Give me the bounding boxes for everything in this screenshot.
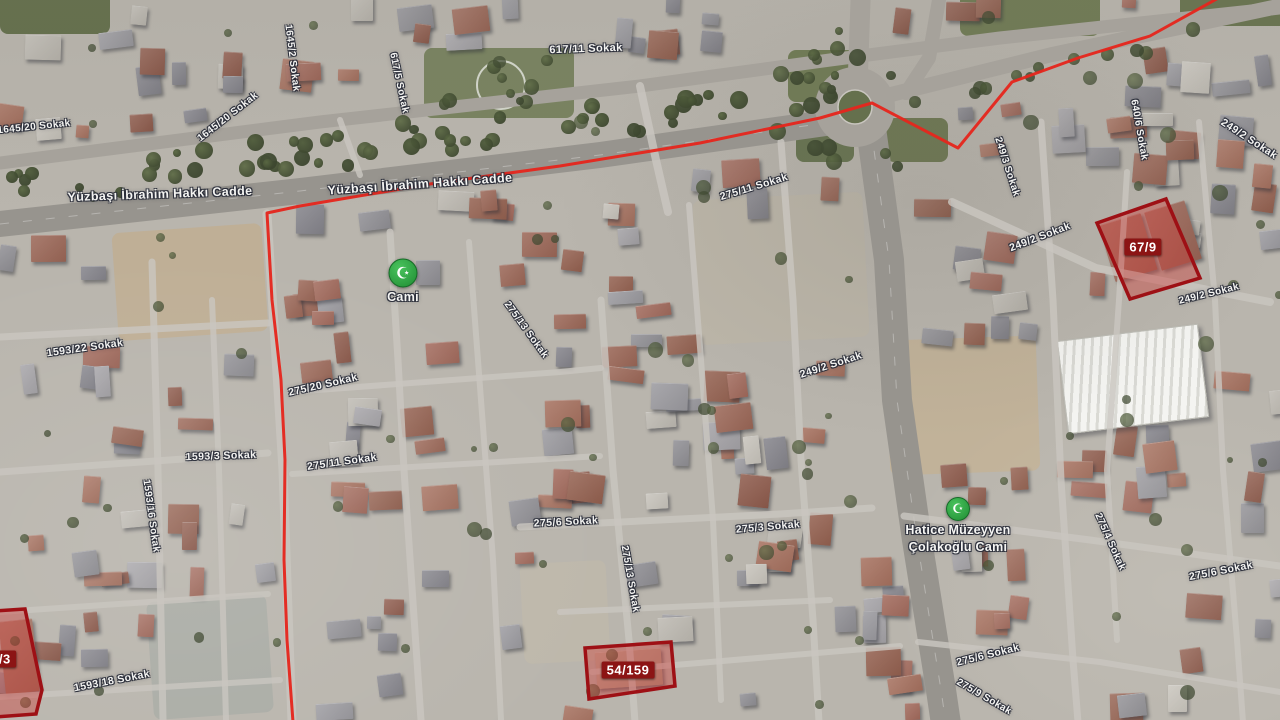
building (500, 624, 523, 650)
parcel-polygon[interactable] (585, 642, 675, 699)
building (279, 59, 315, 94)
building (738, 473, 773, 508)
building (182, 522, 197, 550)
tree (692, 94, 704, 106)
road (1107, 172, 1127, 640)
tree (485, 133, 499, 147)
tree (823, 90, 838, 105)
building (416, 260, 440, 285)
tree (892, 161, 903, 172)
building (515, 552, 534, 565)
tree (687, 96, 697, 106)
building (650, 29, 681, 58)
tree (812, 54, 822, 64)
tree (789, 103, 804, 118)
street-label: 275/11 Sokak (719, 171, 790, 203)
building (501, 0, 518, 19)
tree (633, 125, 646, 138)
street-label: 275/6 Sokak (955, 641, 1021, 668)
building (1166, 140, 1195, 161)
building (703, 421, 741, 450)
tree (309, 21, 317, 29)
building (913, 198, 950, 216)
street-label: 275/3 Sokak (735, 518, 800, 536)
building (223, 354, 253, 377)
tree (807, 140, 824, 157)
tree (1198, 336, 1214, 352)
building (735, 458, 755, 475)
parcel-polygon[interactable] (1097, 199, 1200, 299)
building (861, 557, 893, 587)
tree (725, 554, 733, 562)
building (864, 595, 902, 613)
tree (668, 118, 678, 128)
building (1059, 108, 1076, 138)
dirt-lot (886, 335, 1041, 475)
green-area (960, 0, 1100, 36)
tree (497, 73, 507, 83)
road (689, 205, 721, 700)
tree (880, 148, 892, 160)
road (520, 508, 872, 527)
tree (1160, 127, 1176, 143)
building (958, 545, 988, 567)
satellite-imagery-layer (0, 0, 1280, 720)
tree (759, 545, 773, 559)
tree (94, 686, 104, 696)
building (701, 12, 719, 25)
building (950, 544, 970, 571)
tree (247, 134, 264, 151)
tree (591, 127, 600, 136)
road (390, 232, 421, 720)
road (885, 6, 1280, 96)
street-label: Yüzbaşı İbrahim Hakkı Cadde (327, 171, 513, 198)
tree (467, 522, 482, 537)
building (575, 405, 590, 429)
building (1051, 125, 1086, 154)
tree (805, 459, 813, 467)
tree (260, 153, 276, 169)
building (994, 613, 1010, 630)
building (367, 615, 381, 628)
building (700, 30, 723, 53)
building (1145, 425, 1169, 446)
tree (1101, 48, 1114, 61)
building (326, 618, 362, 639)
building (946, 1, 980, 21)
building (298, 279, 318, 301)
tree (718, 112, 727, 121)
tree (6, 171, 18, 183)
tree (1130, 44, 1144, 58)
building (609, 276, 634, 296)
road-lane-marking (871, 128, 946, 720)
building (329, 440, 359, 468)
building (714, 402, 754, 433)
tree (480, 138, 493, 151)
tree (269, 161, 280, 172)
tree (403, 138, 420, 155)
mosque-label: Hatice MüzeyyenÇolakoğlu Cami (905, 522, 1010, 556)
tree (409, 125, 419, 135)
tree (982, 11, 995, 24)
street-label: 1645/2 Sokak (282, 24, 301, 92)
building (1006, 548, 1025, 580)
roundabout (815, 67, 895, 147)
building (767, 523, 804, 548)
tree (698, 191, 710, 203)
street-label: 1593/3 Sokak (185, 449, 256, 463)
tree (648, 342, 664, 358)
tree (67, 517, 78, 528)
building (887, 673, 923, 695)
park-path (476, 60, 526, 110)
tree (1256, 220, 1265, 229)
tree (664, 105, 679, 120)
building (135, 65, 161, 97)
parcel-label: 67/9 (1124, 239, 1161, 256)
building (396, 4, 433, 32)
street-label: 249/2 Sokak (1219, 116, 1280, 161)
tree (88, 191, 98, 201)
tree (1122, 395, 1131, 404)
building (300, 359, 333, 384)
building (1144, 200, 1202, 271)
building (608, 290, 643, 305)
street-label: 275/6 Sokak (1188, 559, 1254, 583)
tree (18, 185, 30, 197)
tree (803, 72, 815, 84)
building (703, 370, 740, 403)
tree (524, 79, 540, 95)
building (646, 410, 677, 429)
building (292, 292, 325, 318)
building (1252, 164, 1274, 190)
building (98, 29, 134, 51)
tree (980, 82, 993, 95)
building (25, 34, 61, 60)
tree (1120, 413, 1134, 427)
street-label: 275/6 Sokak (533, 514, 598, 529)
building (955, 258, 986, 282)
building (218, 64, 244, 90)
building (1210, 184, 1236, 215)
building (223, 76, 243, 93)
building (94, 366, 111, 398)
building (607, 366, 645, 384)
road (0, 323, 268, 337)
building (555, 347, 572, 367)
tree (586, 684, 600, 698)
street-label: 617/5 Sokak (387, 52, 411, 115)
tree (886, 71, 896, 81)
street-label: 275/13 Sokak (502, 299, 551, 360)
building (189, 567, 204, 597)
building (1218, 114, 1255, 146)
building (645, 492, 668, 509)
building (1124, 85, 1161, 107)
street-label: 249/2 Sokak (1178, 281, 1241, 307)
building (862, 611, 877, 641)
building (1018, 322, 1038, 341)
building (1250, 440, 1280, 473)
building (538, 494, 573, 509)
building (81, 476, 100, 505)
project-boundary-line (267, 0, 1222, 720)
tree (541, 55, 553, 67)
building (544, 400, 581, 428)
building (0, 101, 25, 130)
building (940, 463, 968, 488)
building (881, 594, 909, 616)
road (592, 646, 900, 672)
tree (20, 697, 31, 708)
building (1254, 54, 1272, 87)
building (561, 248, 584, 271)
tree (1068, 53, 1080, 65)
building (953, 245, 982, 272)
tree (386, 435, 394, 443)
building (29, 641, 61, 661)
tree (115, 187, 126, 198)
tree (1139, 46, 1153, 60)
tree (1180, 685, 1195, 700)
building (425, 341, 460, 365)
mosque-icon: ☪ (389, 259, 418, 288)
road (1199, 122, 1243, 720)
tree (263, 159, 272, 168)
building (1259, 228, 1280, 249)
mosque-label: Cami (387, 289, 419, 306)
tree (831, 71, 839, 79)
tree (435, 126, 450, 141)
building (480, 189, 498, 212)
building (1179, 647, 1204, 675)
building (353, 406, 382, 427)
tree (1258, 458, 1267, 467)
building (120, 508, 157, 529)
tree (1033, 62, 1044, 73)
annotation-overlay-layer (0, 0, 1280, 720)
building (990, 316, 1009, 339)
tree (543, 201, 552, 210)
tree (401, 644, 410, 653)
green-area (796, 122, 854, 162)
tree (1112, 612, 1121, 621)
road (290, 368, 601, 392)
tree (589, 454, 596, 461)
building (1143, 47, 1169, 75)
tree (835, 27, 843, 35)
building (835, 606, 857, 633)
building (72, 550, 100, 578)
tree (703, 90, 713, 100)
building (345, 422, 361, 450)
building (1255, 619, 1272, 638)
building (1143, 440, 1178, 474)
building (863, 615, 886, 643)
building (893, 7, 912, 35)
building (721, 442, 735, 458)
building (975, 610, 1008, 636)
building (100, 572, 129, 588)
building (400, 405, 435, 437)
building (286, 62, 322, 82)
tree (595, 113, 609, 127)
building (743, 435, 762, 465)
tree (444, 134, 456, 146)
tree (445, 143, 459, 157)
tree (819, 82, 832, 95)
building (882, 585, 905, 610)
building (964, 323, 986, 346)
tree (333, 501, 343, 511)
building (1167, 473, 1187, 489)
tree (909, 96, 920, 107)
tree (442, 93, 458, 109)
tree (1011, 70, 1023, 82)
road (781, 142, 819, 720)
tree (1149, 513, 1162, 526)
satellite-map-viewport[interactable]: Yüzbaşı İbrahim Hakkı CaddeYüzbaşı İbrah… (0, 0, 1280, 720)
building (968, 486, 986, 504)
building (1010, 467, 1029, 491)
building (35, 117, 62, 141)
tree (297, 137, 313, 153)
tree (561, 120, 575, 134)
building (342, 486, 369, 514)
building (1098, 213, 1157, 282)
tree (173, 149, 181, 157)
tree (153, 301, 164, 312)
building (172, 62, 186, 86)
tree (643, 627, 652, 636)
building (313, 278, 341, 301)
dirt-lot (111, 223, 268, 341)
building (960, 539, 982, 571)
building (628, 36, 646, 54)
tree (790, 71, 804, 85)
mosque-label-line: Çolakoğlu Cami (905, 539, 1010, 556)
building (566, 471, 606, 505)
building (1268, 389, 1280, 414)
building (31, 235, 67, 262)
building (1251, 182, 1277, 214)
tree (698, 403, 710, 415)
green-area (1180, 0, 1280, 26)
street-label: 249/2 Sokak (1008, 220, 1073, 254)
building (1171, 217, 1200, 235)
building (1122, 480, 1155, 513)
building (658, 616, 694, 643)
tree (75, 183, 84, 192)
mosque-icon: ☪ (946, 497, 970, 521)
street-label: 1593/22 Sokak (46, 337, 124, 360)
building (666, 0, 681, 13)
street-label: 275/4 Sokak (1092, 512, 1127, 573)
road (1041, 122, 1078, 720)
building (905, 703, 920, 720)
tree (1275, 291, 1280, 299)
building (168, 504, 200, 535)
building (1109, 117, 1147, 140)
building (921, 327, 953, 346)
tree (103, 504, 112, 513)
tree (1000, 477, 1008, 485)
building (1244, 471, 1265, 503)
building (983, 231, 1018, 265)
tree (14, 169, 24, 179)
street-label: 275/20 Sokak (287, 371, 359, 399)
building (816, 360, 846, 376)
building (755, 541, 794, 573)
tree (1066, 432, 1074, 440)
building (808, 512, 834, 546)
road (601, 300, 635, 720)
parcel-label: 54/159 (602, 662, 655, 679)
building (414, 437, 446, 455)
building (137, 614, 155, 638)
tree (88, 44, 96, 52)
roundabout-island (838, 90, 872, 124)
building (561, 705, 593, 720)
tree (480, 528, 492, 540)
building (79, 364, 103, 389)
building (1136, 465, 1167, 499)
tree (506, 89, 515, 98)
tree (808, 49, 820, 61)
tree (627, 123, 641, 137)
building (1153, 157, 1179, 187)
building (631, 334, 662, 347)
street-label: 275/11 Sokak (306, 451, 377, 473)
road (152, 262, 163, 720)
building (316, 702, 354, 720)
tree (471, 446, 477, 452)
building (178, 417, 213, 430)
tree (294, 150, 310, 166)
building (384, 599, 405, 615)
building (1147, 436, 1168, 451)
building (317, 296, 345, 324)
building (746, 188, 768, 220)
building (1163, 229, 1202, 248)
tree (983, 560, 994, 571)
building (647, 30, 679, 61)
tree (825, 413, 831, 419)
street-label: 640/6 Sokak (1128, 99, 1150, 162)
tree (332, 130, 344, 142)
building (334, 331, 353, 364)
building (0, 244, 16, 272)
road-lane-marking (0, 116, 875, 224)
building (541, 427, 574, 457)
building (651, 383, 689, 412)
parcel-polygon[interactable] (0, 609, 42, 718)
tree (584, 98, 600, 114)
building (111, 426, 144, 448)
tree (577, 113, 589, 125)
building (1110, 693, 1144, 720)
street-label: 1645/20 Sokak (0, 118, 71, 137)
building (1082, 449, 1108, 472)
building (777, 539, 799, 562)
building (468, 197, 507, 220)
building (1086, 147, 1120, 167)
tree (519, 95, 533, 109)
tree (1083, 71, 1097, 85)
